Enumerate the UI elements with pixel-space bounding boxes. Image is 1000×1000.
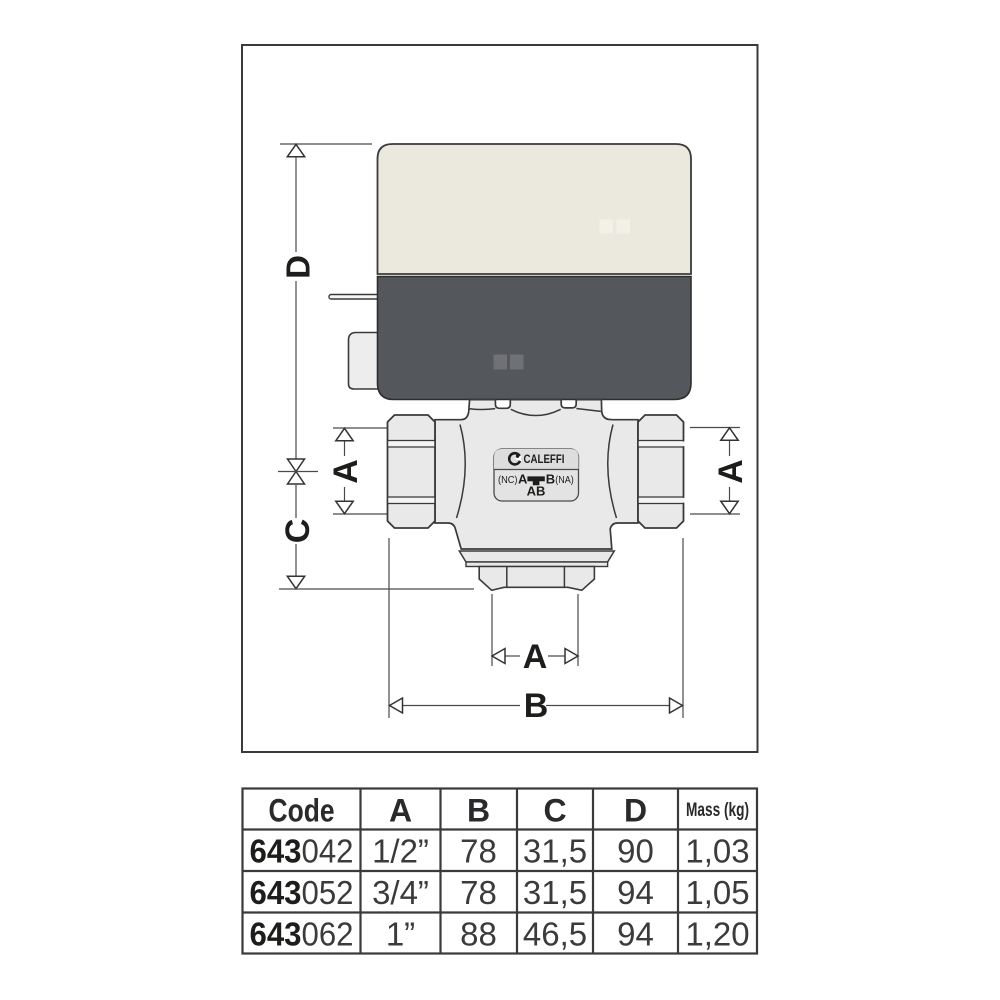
svg-text:643052: 643052 [250,874,354,911]
svg-text:Code: Code [269,793,335,829]
svg-text:643042: 643042 [250,833,354,870]
svg-text:1”: 1” [386,916,415,953]
svg-text:(NC): (NC) [498,475,518,486]
svg-text:78: 78 [460,833,497,870]
svg-text:1,03: 1,03 [685,833,749,870]
svg-text:A: A [327,459,365,484]
svg-text:B: B [467,793,490,829]
svg-text:643062: 643062 [250,916,354,953]
svg-text:CALEFFI: CALEFFI [524,454,565,466]
svg-text:1/2”: 1/2” [372,833,429,870]
svg-text:88: 88 [460,916,497,953]
svg-text:Mass (kg): Mass (kg) [686,800,749,821]
svg-text:D: D [279,255,316,279]
svg-text:B: B [524,687,549,725]
svg-text:94: 94 [617,916,654,953]
svg-text:1,20: 1,20 [685,916,749,953]
svg-text:AB: AB [527,484,546,499]
svg-text:46,5: 46,5 [523,916,587,953]
svg-text:31,5: 31,5 [523,874,587,911]
svg-text:31,5: 31,5 [523,833,587,870]
svg-text:A: A [389,793,412,829]
svg-text:78: 78 [460,874,497,911]
svg-text:C: C [543,793,566,829]
svg-text:(NA): (NA) [555,475,574,486]
svg-text:94: 94 [617,874,654,911]
svg-text:3/4”: 3/4” [372,874,429,911]
svg-text:90: 90 [617,833,654,870]
svg-text:1,05: 1,05 [685,874,749,911]
svg-text:D: D [624,793,647,829]
svg-text:B: B [546,471,555,486]
svg-text:A: A [712,459,750,484]
svg-text:A: A [523,638,548,676]
svg-text:C: C [279,519,317,544]
